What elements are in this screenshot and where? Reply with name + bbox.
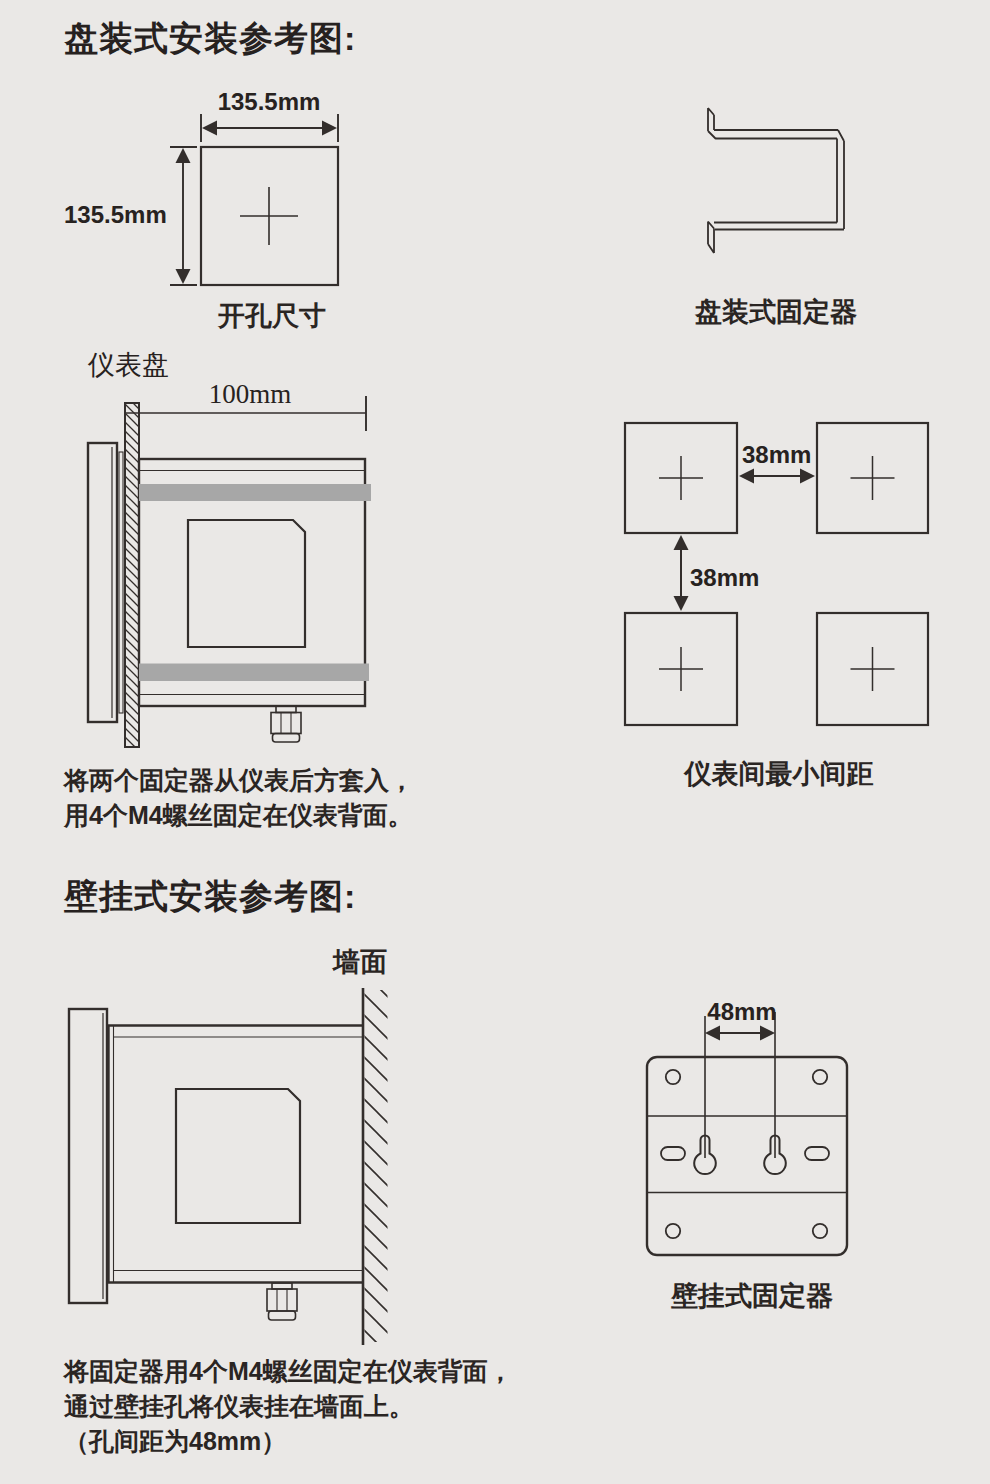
cutout-height-label: 135.5mm (64, 201, 167, 229)
depth-label: 100mm (205, 379, 295, 410)
arrowhead-left (202, 121, 217, 136)
screw-hole-tr (813, 1070, 827, 1084)
screw-hole-tl (666, 1070, 680, 1084)
wall-note-line-2: 通过壁挂孔将仪表挂在墙面上。 (64, 1389, 414, 1424)
cutout-caption: 开孔尺寸 (182, 298, 362, 334)
terminal-cover (188, 520, 305, 647)
bracket-top-flange (708, 108, 716, 139)
hole-pitch-dimension (705, 1012, 775, 1158)
body-edge-lines (139, 471, 365, 695)
panel-mount-title: 盘装式安装参考图: (64, 16, 356, 62)
slot-left (661, 1147, 685, 1160)
arrowhead-right (322, 121, 337, 136)
wall-side-view (69, 988, 388, 1345)
spacing-caption: 仪表间最小间距 (659, 756, 899, 792)
cutout-height-dimension (170, 147, 197, 285)
wall-mount-title: 壁挂式安装参考图: (64, 874, 356, 920)
slot-right (805, 1147, 829, 1160)
front-bezel (88, 443, 117, 722)
arrowhead-down (176, 269, 191, 284)
front-bezel-wall (69, 1009, 107, 1303)
wall-hatching (365, 990, 388, 1342)
vertical-gap-label: 38mm (690, 564, 759, 592)
bracket-right-bar (837, 130, 844, 229)
wall-note-line-3: （孔间距为48mm） (64, 1424, 286, 1459)
cutout-width-label: 135.5mm (199, 88, 339, 116)
fixer-bar-top (139, 484, 371, 501)
manual-page: 盘装式安装参考图: 135.5mm 135.5mm 开孔尺寸 盘装式固定器 仪表… (0, 0, 990, 1484)
hole-pitch-label: 48mm (700, 998, 784, 1026)
terminal-cover-wall (176, 1089, 300, 1223)
arrowhead-up (176, 148, 191, 163)
cross-tl (659, 456, 703, 500)
wall-fixer-diagram (647, 1012, 847, 1255)
wall-fixer-caption: 壁挂式固定器 (642, 1278, 862, 1314)
panel-fixer-caption: 盘装式固定器 (666, 294, 886, 330)
horizontal-gap-arrow (739, 469, 815, 484)
cross-br (851, 647, 895, 691)
screw-hole-br (813, 1224, 827, 1238)
instrument-body-wall (109, 1026, 364, 1283)
vertical-gap-arrow (674, 535, 689, 611)
screw-hole-bl (666, 1224, 680, 1238)
wall-label: 墙面 (333, 944, 387, 980)
panel-hatched-bar (125, 403, 139, 747)
cross-bl (659, 647, 703, 691)
cable-gland (271, 706, 301, 742)
fixer-bar-bottom (139, 664, 369, 682)
horizontal-gap-label: 38mm (742, 441, 811, 469)
panel-fixer-diagram (708, 108, 844, 253)
panel-side-view (88, 396, 371, 747)
cable-gland-wall (267, 1283, 297, 1320)
bracket-bottom-flange (708, 222, 714, 254)
plate-fold-lines (647, 1116, 847, 1193)
body-edge-lines-wall (114, 1037, 364, 1271)
panel-note-line-1: 将两个固定器从仪表后方套入， (64, 763, 414, 798)
bracket-bottom-bar (714, 223, 844, 230)
cutout-width-dimension (201, 114, 338, 142)
center-cross (240, 187, 298, 245)
bracket-top-bar (714, 130, 838, 139)
bezel-collar (119, 452, 123, 713)
panel-note-line-2: 用4个M4螺丝固定在仪表背面。 (64, 798, 413, 833)
cutout-diagram (170, 114, 338, 285)
cross-tr (851, 456, 895, 500)
wall-note-line-1: 将固定器用4个M4螺丝固定在仪表背面， (64, 1354, 513, 1389)
panel-label: 仪表盘 (88, 347, 169, 383)
